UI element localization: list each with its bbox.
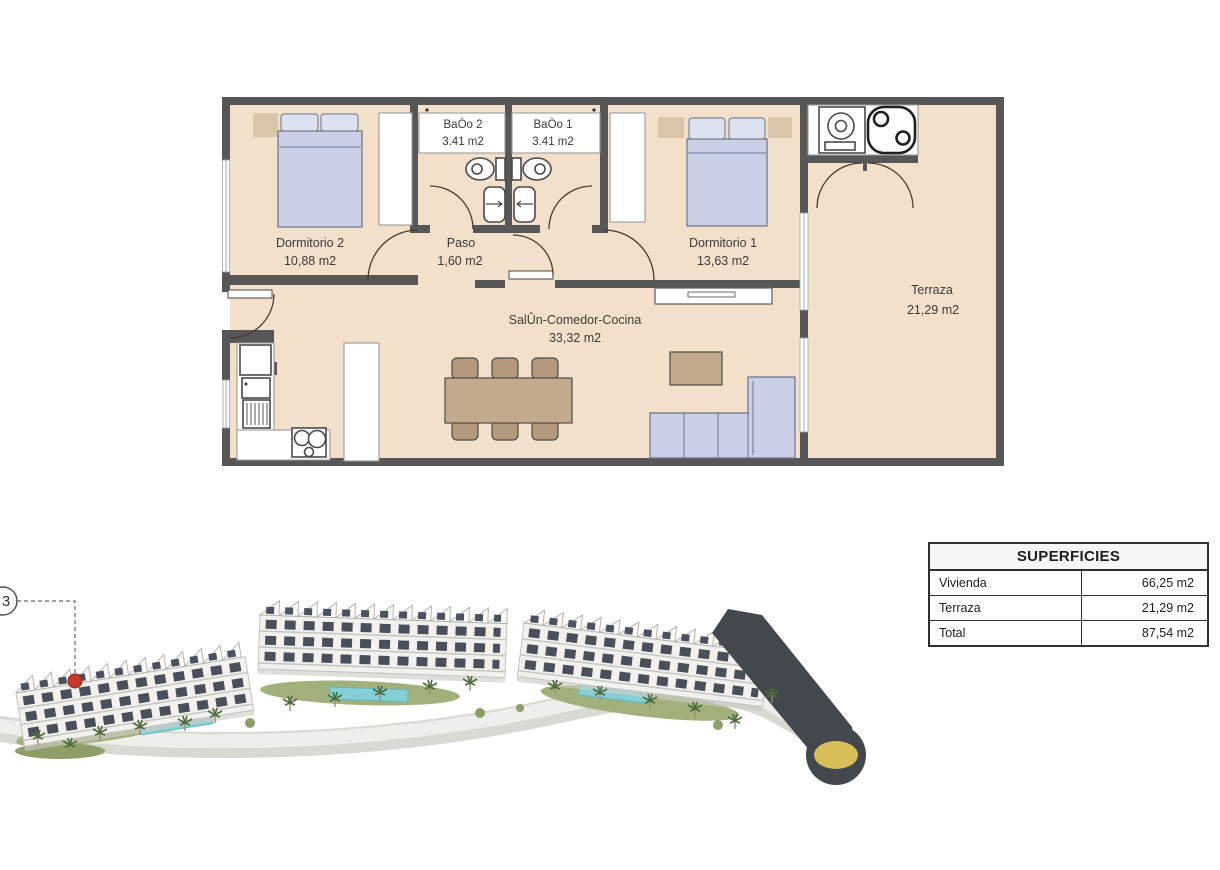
pool — [330, 687, 408, 702]
nightstand — [658, 117, 684, 138]
bed-double — [687, 139, 767, 226]
room-label-bano2-name: BaÒo 2 — [444, 118, 483, 131]
row-label-terraza: Terraza — [930, 596, 1082, 620]
wardrobe — [610, 113, 645, 222]
room-label-bano1-area: 3.41 m2 — [532, 136, 574, 148]
dining-chair — [452, 358, 478, 379]
fridge — [242, 378, 270, 398]
tv-cabinet — [655, 288, 772, 304]
row-value-terraza: 21,29 m2 — [1082, 596, 1207, 620]
room-label-bano2-area: 3.41 m2 — [442, 136, 484, 148]
pillow — [281, 114, 318, 131]
room-label-salon-area: 33,32 m2 — [549, 331, 601, 345]
dining-chair — [492, 358, 518, 379]
pillow — [729, 118, 765, 139]
unit-number: 3 — [2, 593, 10, 610]
room-label-terraza-name: Terraza — [911, 283, 953, 297]
pillow — [321, 114, 358, 131]
room-label-dormitorio1-name: Dormitorio 1 — [689, 236, 757, 250]
cabinet — [240, 345, 271, 375]
row-value-total: 87,54 m2 — [1082, 621, 1207, 645]
room-label-paso-name: Paso — [447, 236, 476, 250]
building-block-middle — [258, 600, 507, 683]
dining-table — [445, 378, 572, 423]
superficies-table-body: Vivienda 66,25 m2 Terraza 21,29 m2 Total… — [928, 571, 1209, 647]
kitchen-peninsula — [344, 343, 379, 461]
site-aerial-render: 3 — [0, 575, 890, 785]
table-row: Terraza 21,29 m2 — [930, 596, 1207, 621]
unit-location-marker — [68, 674, 82, 688]
row-label-vivienda: Vivienda — [930, 571, 1082, 595]
floor-plan: Dormitorio 2 10,88 m2 BaÒo 2 3.41 m2 BaÒ… — [222, 97, 1004, 466]
dining-chair — [532, 358, 558, 379]
superficies-table-title: SUPERFICIES — [928, 542, 1209, 571]
brochure-page: Dormitorio 2 10,88 m2 BaÒo 2 3.41 m2 BaÒ… — [0, 0, 1220, 870]
toilet-cistern — [496, 158, 505, 180]
pillow — [689, 118, 725, 139]
wardrobe — [379, 113, 412, 225]
row-value-vivienda: 66,25 m2 — [1082, 571, 1207, 595]
superficies-table: SUPERFICIES Vivienda 66,25 m2 Terraza 21… — [928, 542, 1209, 647]
room-label-bano1-name: BaÒo 1 — [534, 118, 573, 131]
toilet-cistern — [512, 158, 521, 180]
nightstand — [253, 113, 278, 137]
row-label-total: Total — [930, 621, 1082, 645]
roundabout-center — [814, 741, 858, 769]
coffee-table — [670, 352, 722, 385]
room-label-paso-area: 1,60 m2 — [437, 254, 482, 268]
room-label-dormitorio2-name: Dormitorio 2 — [276, 236, 344, 250]
room-label-dormitorio1-area: 13,63 m2 — [697, 254, 749, 268]
table-row: Total 87,54 m2 — [930, 621, 1207, 645]
bed-double — [278, 131, 362, 227]
table-row: Vivienda 66,25 m2 — [930, 571, 1207, 596]
room-label-salon-name: SalÛn-Comedor-Cocina — [509, 312, 642, 327]
room-label-terraza-area: 21,29 m2 — [907, 303, 959, 317]
room-label-dormitorio2-area: 10,88 m2 — [284, 254, 336, 268]
nightstand — [768, 117, 792, 138]
